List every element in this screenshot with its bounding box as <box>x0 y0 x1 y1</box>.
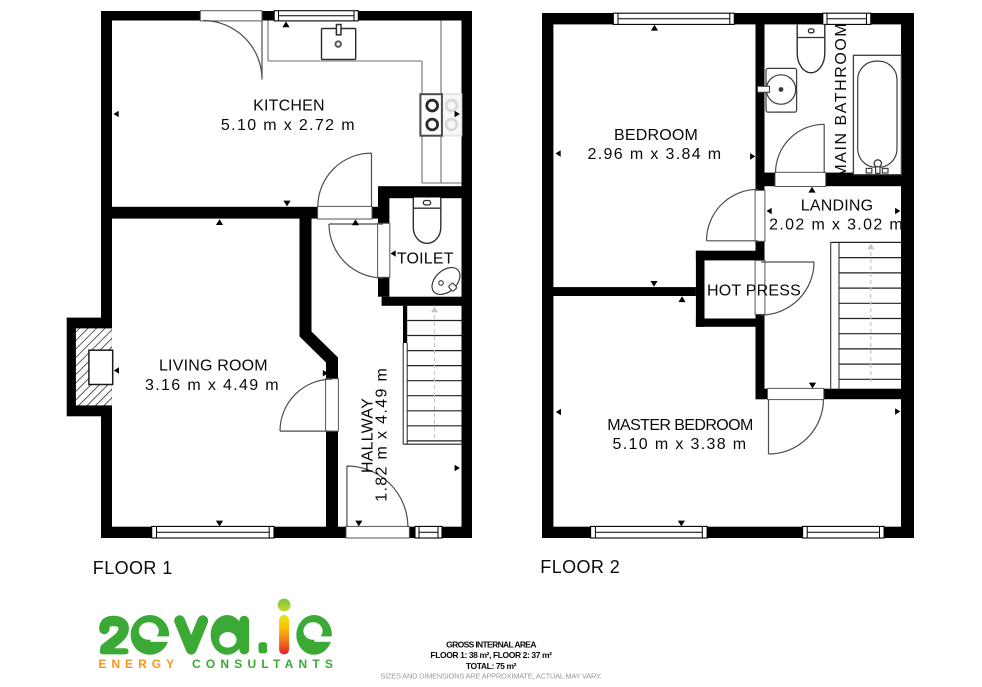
svg-text:MAIN BATHROOM: MAIN BATHROOM <box>833 22 850 178</box>
svg-text:5.10 m x 3.38 m: 5.10 m x 3.38 m <box>613 436 748 453</box>
svg-text:TOILET: TOILET <box>397 251 454 268</box>
svg-text:FLOOR 1: 38 m², FLOOR 2: 37 m²: FLOOR 1: 38 m², FLOOR 2: 37 m² <box>430 650 552 660</box>
svg-text:1.82 m x 4.49 m: 1.82 m x 4.49 m <box>373 367 390 502</box>
svg-text:HOT PRESS: HOT PRESS <box>707 283 801 300</box>
svg-text:GROSS INTERNAL AREA: GROSS INTERNAL AREA <box>446 640 536 650</box>
svg-text:LIVING ROOM: LIVING ROOM <box>159 358 268 375</box>
svg-text:KITCHEN: KITCHEN <box>253 98 325 115</box>
svg-text:2.02 m x 3.02 m: 2.02 m x 3.02 m <box>769 217 904 234</box>
svg-text:BEDROOM: BEDROOM <box>614 127 698 144</box>
svg-text:2.96 m x 3.84 m: 2.96 m x 3.84 m <box>588 146 723 163</box>
svg-text:FLOOR 2: FLOOR 2 <box>540 557 620 577</box>
svg-text:ENERGY: ENERGY <box>98 657 179 671</box>
svg-text:TOTAL: 75 m²: TOTAL: 75 m² <box>466 661 517 671</box>
svg-text:CONSULTANTS: CONSULTANTS <box>192 657 338 671</box>
svg-text:5.10 m x 2.72 m: 5.10 m x 2.72 m <box>221 117 356 134</box>
svg-text:MASTER BEDROOM: MASTER BEDROOM <box>607 417 753 434</box>
svg-text:LANDING: LANDING <box>801 198 874 215</box>
svg-text:SIZES AND DIMENSIONS ARE APPRO: SIZES AND DIMENSIONS ARE APPROXIMATE, AC… <box>380 672 601 681</box>
svg-text:3.16 m x 4.49 m: 3.16 m x 4.49 m <box>145 377 280 394</box>
svg-text:FLOOR 1: FLOOR 1 <box>93 558 173 578</box>
